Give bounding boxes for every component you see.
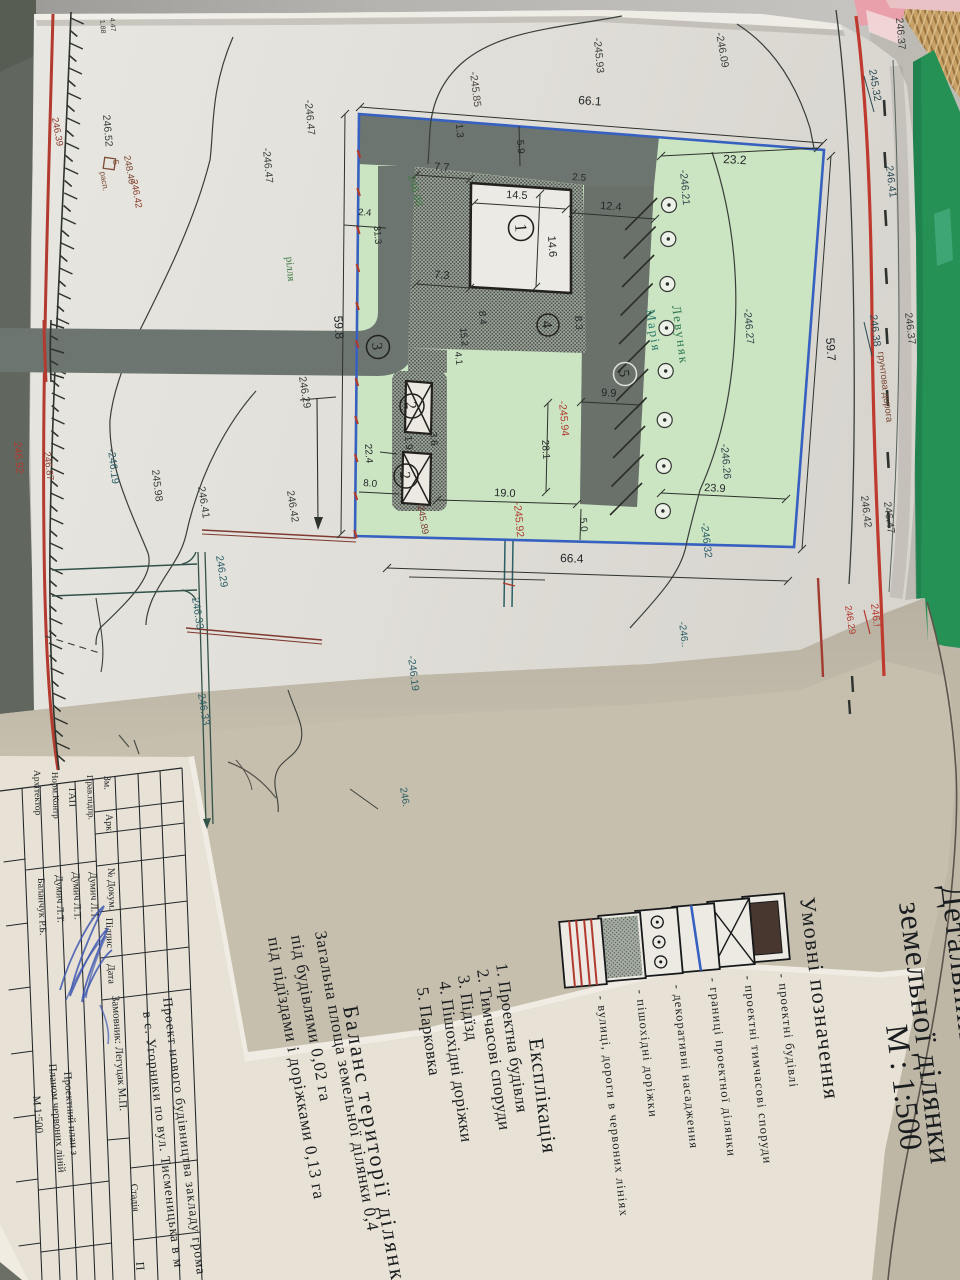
svg-text:Прав.підпр.: Прав.підпр.	[85, 775, 97, 820]
svg-text:15.2: 15.2	[457, 327, 470, 347]
svg-text:8.3: 8.3	[572, 315, 584, 330]
svg-text:5.0: 5.0	[577, 517, 589, 532]
svg-text:4.47: 4.47	[108, 18, 116, 32]
svg-text:31.3: 31.3	[371, 225, 383, 244]
svg-text:2.5: 2.5	[572, 172, 587, 184]
svg-text:1.88: 1.88	[98, 20, 106, 34]
svg-text:2.4: 2.4	[358, 207, 372, 219]
svg-text:Баланчук Р.Б.: Баланчук Р.Б.	[35, 878, 48, 936]
svg-text:Архітектор: Архітектор	[31, 770, 43, 816]
svg-text:59.7: 59.7	[823, 337, 839, 362]
svg-text:Думич Л.Т.: Думич Л.Т.	[53, 875, 66, 923]
svg-text:8.0: 8.0	[363, 478, 378, 490]
svg-text:ГАП: ГАП	[66, 788, 78, 808]
svg-text:59.8: 59.8	[331, 315, 347, 340]
svg-text:12.4: 12.4	[600, 200, 622, 213]
svg-text:3: 3	[368, 342, 385, 351]
svg-text:8.4: 8.4	[476, 310, 488, 325]
svg-text:7.7: 7.7	[434, 161, 450, 174]
svg-text:Арк.: Арк.	[103, 814, 115, 834]
svg-text:3.6: 3.6	[427, 431, 439, 446]
svg-text:5.9: 5.9	[514, 139, 526, 154]
svg-text:23.9: 23.9	[704, 482, 726, 495]
svg-text:Дата: Дата	[105, 964, 117, 985]
svg-text:2: 2	[396, 471, 413, 480]
svg-text:2: 2	[402, 401, 419, 410]
svg-text:7.3: 7.3	[434, 269, 450, 282]
svg-text:4.1: 4.1	[452, 351, 464, 365]
svg-text:28.1: 28.1	[539, 439, 551, 460]
svg-text:Думич Л.Т.: Думич Л.Т.	[70, 872, 83, 920]
svg-text:1.9: 1.9	[402, 435, 414, 450]
svg-text:66.1: 66.1	[578, 93, 603, 109]
svg-text:Б: Б	[111, 159, 120, 165]
svg-text:19.0: 19.0	[494, 487, 516, 500]
svg-text:1.3: 1.3	[453, 123, 465, 138]
svg-text:№ Докум.: № Докум.	[105, 868, 117, 911]
svg-text:9.9: 9.9	[601, 387, 617, 400]
svg-text:1: 1	[511, 223, 531, 233]
svg-text:Стадія: Стадія	[128, 1183, 141, 1212]
svg-text:22.4: 22.4	[362, 443, 374, 464]
svg-text:14.5: 14.5	[506, 189, 528, 202]
svg-text:23.2: 23.2	[723, 152, 747, 167]
svg-text:П: П	[133, 1261, 148, 1271]
svg-text:14.6: 14.6	[545, 235, 558, 257]
svg-text:5: 5	[615, 369, 632, 378]
svg-text:66.4: 66.4	[560, 551, 584, 566]
svg-text:Норм.Контр: Норм.Контр	[50, 772, 62, 820]
svg-text:рілля: рілля	[283, 256, 297, 282]
svg-text:Зм.: Зм.	[101, 776, 112, 790]
